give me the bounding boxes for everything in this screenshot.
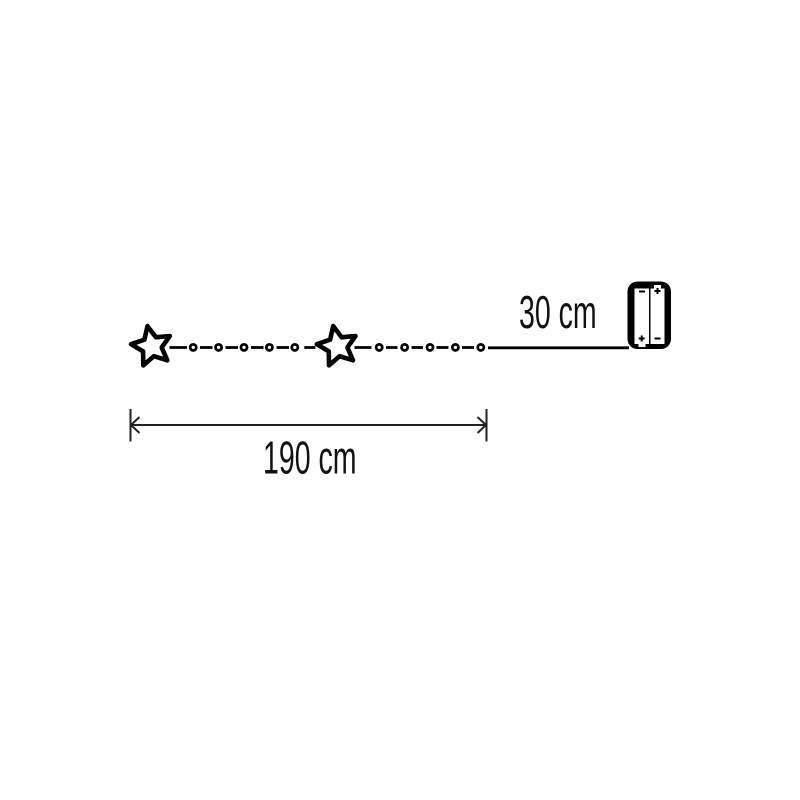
svg-text:190 cm: 190 cm	[263, 433, 357, 485]
svg-text:30 cm: 30 cm	[519, 287, 597, 339]
